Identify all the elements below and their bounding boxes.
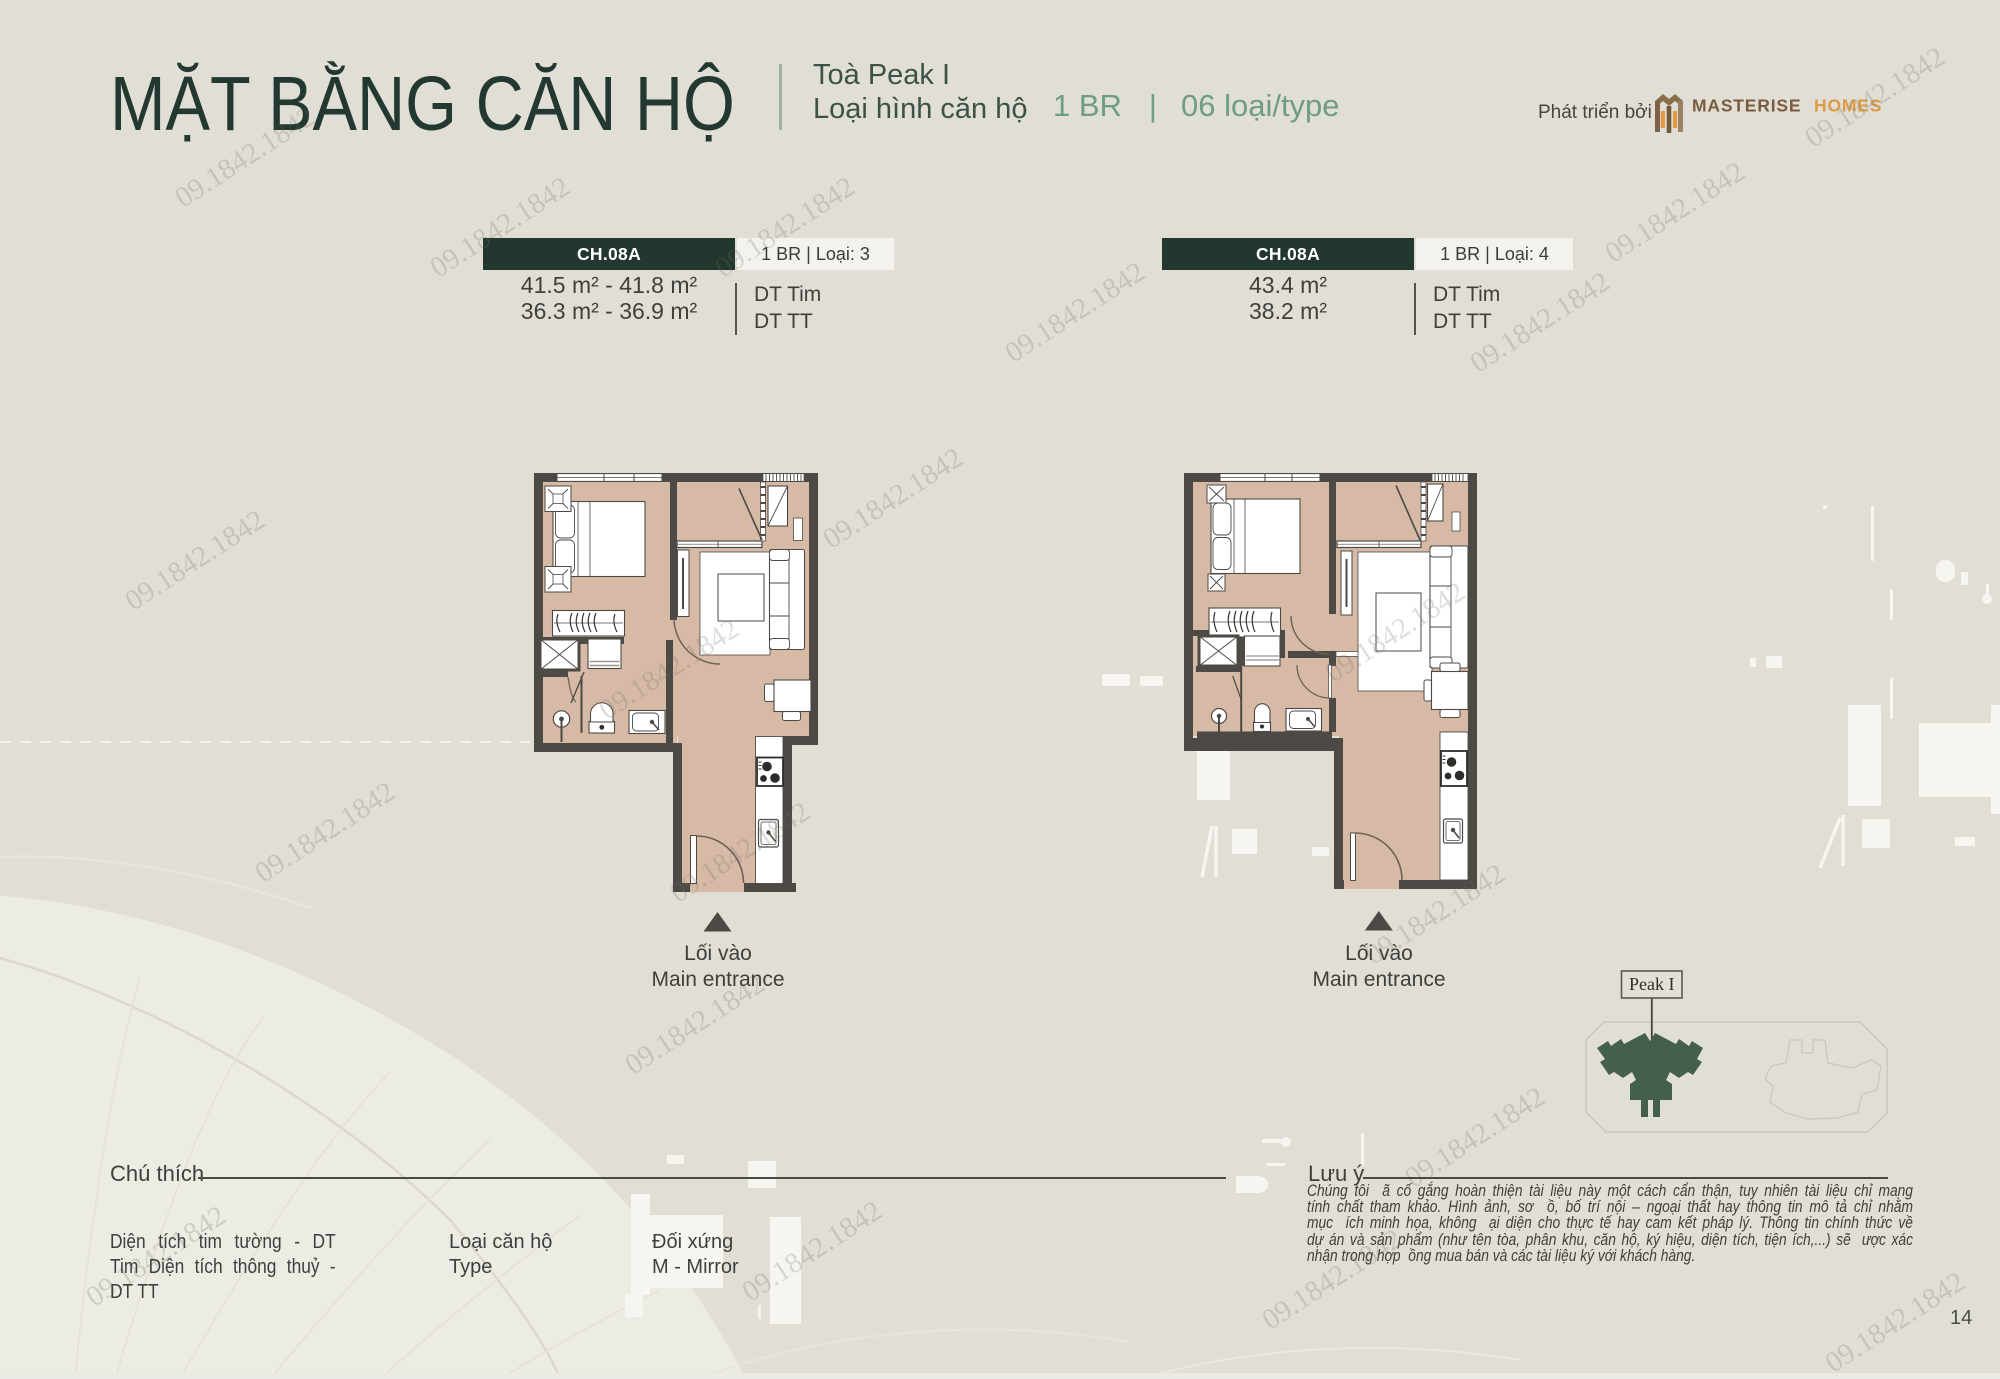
svg-text:Peak I: Peak I (1629, 974, 1674, 994)
